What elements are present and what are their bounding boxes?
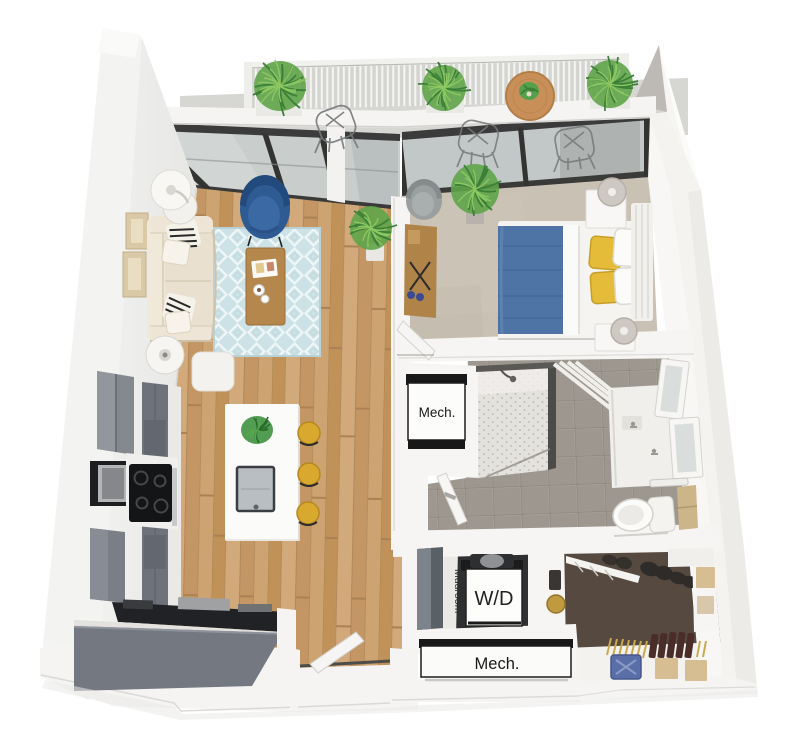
svg-text:Mudroom: Mudroom xyxy=(452,569,464,614)
svg-text:Mech.: Mech. xyxy=(419,405,456,420)
svg-text:Mech.: Mech. xyxy=(475,655,520,673)
svg-text:W/D: W/D xyxy=(475,588,514,610)
